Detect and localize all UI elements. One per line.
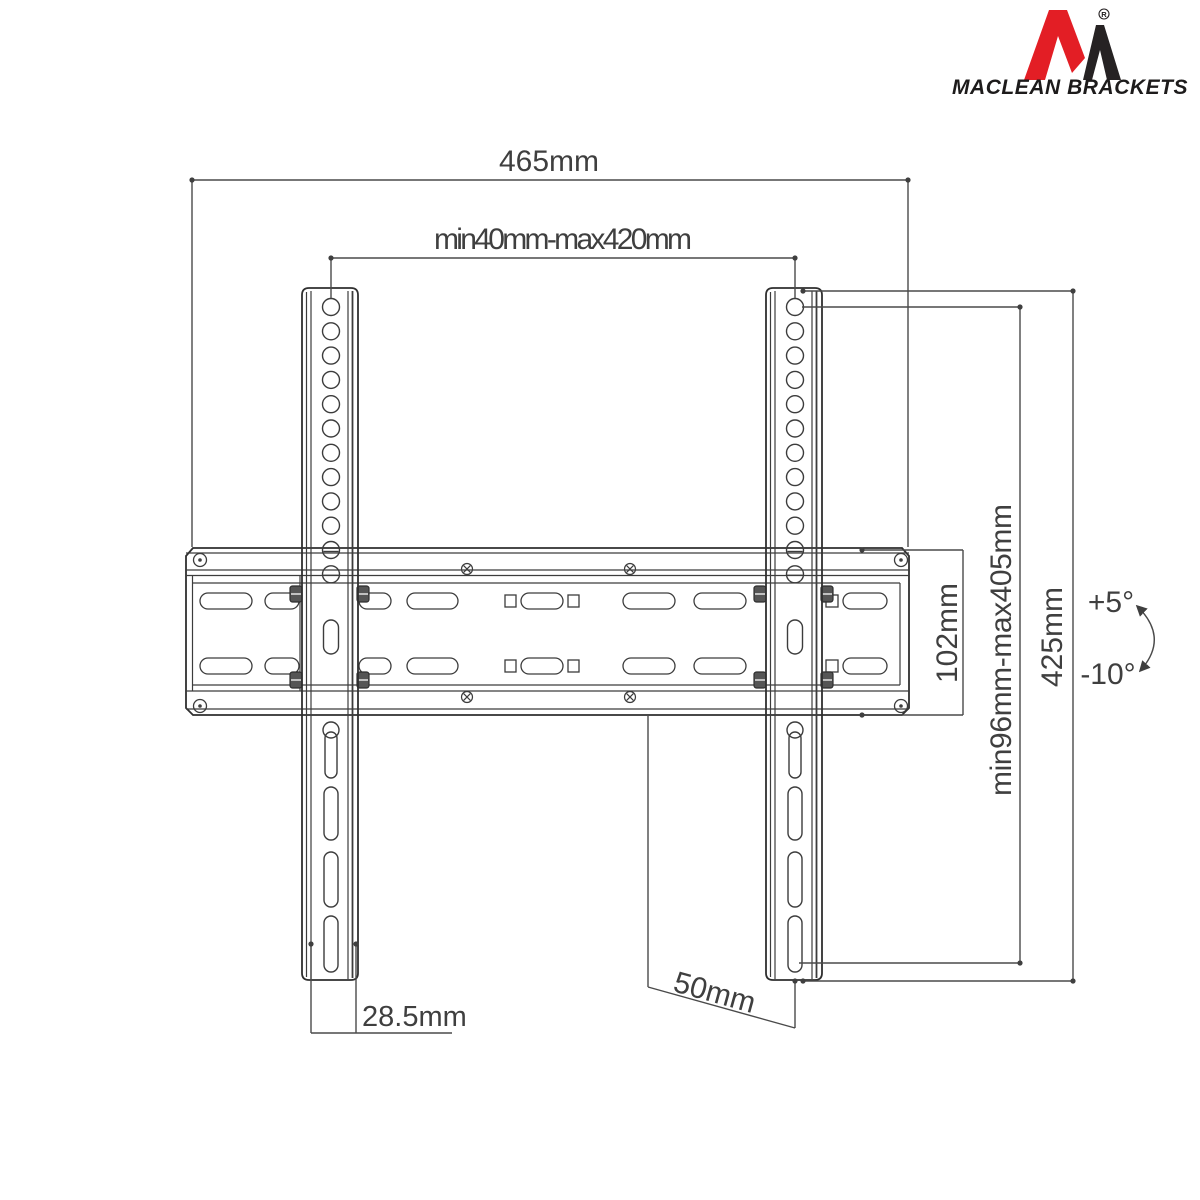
plate-corner-screw-icon: [895, 554, 908, 567]
plate-mid-screw-icon: [625, 692, 636, 703]
rail-bolt-icon: [754, 586, 766, 602]
technical-drawing-page: 465mm min40mm-max420mm 102mm min96mm-max…: [0, 0, 1200, 1200]
tilt-indicator: +5° -10°: [1080, 586, 1154, 691]
dim-label-overall-width: 465mm: [499, 145, 599, 178]
dim-overall-width: 465mm: [189, 145, 910, 547]
tilt-down-label: -10°: [1080, 658, 1135, 691]
dim-plate-height: 102mm: [859, 547, 964, 717]
dim-label-wall-offset: 50mm: [670, 966, 759, 1020]
dim-label-vesa-height: min96mm-max405mm: [985, 504, 1018, 796]
logo-m-black-icon: [1083, 25, 1121, 80]
dim-label-vesa-width: min40mm-max420mm: [434, 223, 692, 256]
maclean-logo: R MACLEAN BRACKETS: [952, 9, 1188, 99]
logo-m-red-icon: [1024, 10, 1085, 80]
dim-vesa-width: min40mm-max420mm: [328, 223, 797, 298]
dim-rail-width: 28.5mm: [308, 941, 466, 1033]
tv-mount-dimension-diagram: 465mm min40mm-max420mm 102mm min96mm-max…: [0, 0, 1200, 1200]
plate-mid-screw-icon: [625, 564, 636, 575]
dim-label-bracket-height: 425mm: [1036, 587, 1069, 687]
dimension-annotations: 465mm min40mm-max420mm 102mm min96mm-max…: [189, 145, 1154, 1033]
left-rail-drawing: [302, 288, 358, 980]
plate-slot-row-upper: [200, 593, 887, 609]
plate-slot-row-lower: [200, 658, 887, 674]
tilt-up-label: +5°: [1088, 586, 1134, 619]
right-rail-drawing: [766, 288, 822, 980]
tilt-arc-arrow-icon: [1137, 606, 1154, 671]
brand-text: MACLEAN BRACKETS: [952, 76, 1188, 99]
plate-corner-screw-icon: [194, 554, 207, 567]
wall-plate-drawing: [186, 548, 909, 715]
rail-bolt-icon: [290, 672, 302, 688]
plate-mid-screw-icon: [462, 692, 473, 703]
plate-corner-screw-icon: [194, 700, 207, 713]
rail-bolt-icon: [290, 586, 302, 602]
dim-label-rail-width: 28.5mm: [362, 1001, 467, 1033]
registered-trademark-letter: R: [1101, 10, 1107, 19]
rail-bolt-icon: [754, 672, 766, 688]
dim-label-plate-height: 102mm: [931, 583, 964, 683]
plate-mid-screw-icon: [462, 564, 473, 575]
plate-corner-screw-icon: [895, 700, 908, 713]
dim-vesa-height: min96mm-max405mm: [799, 304, 1023, 965]
